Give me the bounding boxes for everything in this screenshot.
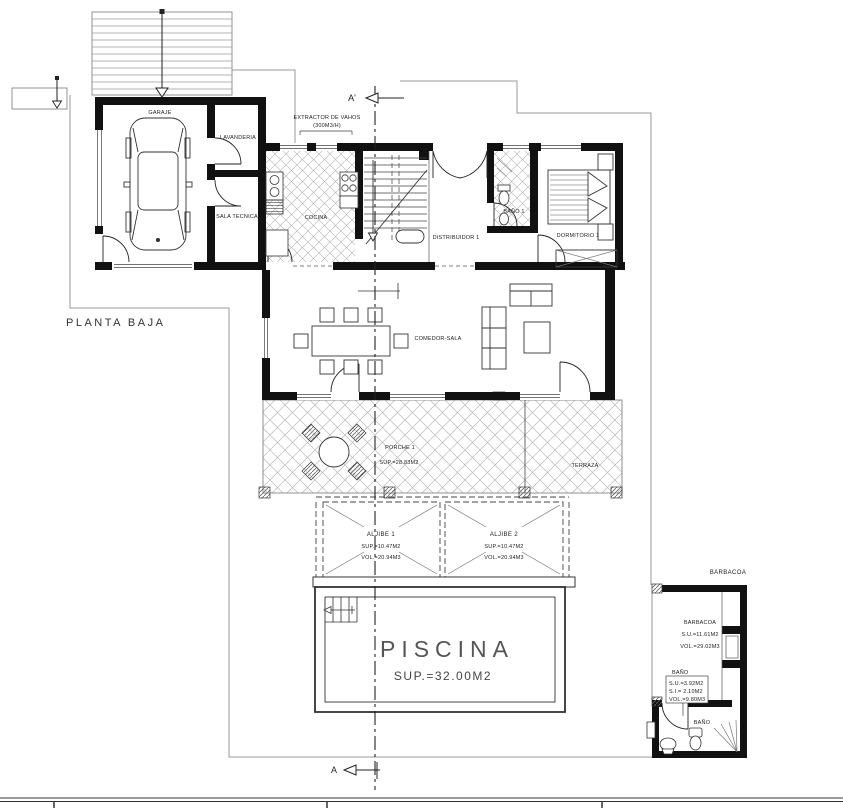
label-aljibe2-sup: SUP.=10.47M2 [484, 544, 523, 550]
label-lavanderia: LAVANDERIA [220, 135, 256, 141]
label-garaje: GARAJE [148, 110, 171, 116]
label-dormitorio1: DORMITORIO 1 [557, 233, 600, 239]
label-porche: PORCHE 1 [385, 445, 415, 451]
label-barbacoa-bano: BAÑO [672, 669, 689, 676]
floor-plan-page: A' A EXTRACTOR DE VAHOS (300M3/H) GARAJE… [0, 0, 843, 808]
plan-title: PLANTA BAJA [66, 317, 165, 329]
label-distribuidor: DISTRIBUIDOR 1 [433, 235, 480, 241]
floor-plan-drawing: A' A EXTRACTOR DE VAHOS (300M3/H) GARAJE… [0, 0, 843, 808]
label-barbacoa-title: BARBACOA [710, 570, 747, 576]
label-barbacoa-bano-si: S.I.= 2.10M2 [669, 689, 703, 695]
label-piscina-sup: SUP.=32.00M2 [394, 669, 492, 683]
label-piscina: PISCINA [380, 636, 514, 662]
label-cocina: COCINA [305, 215, 328, 221]
label-barbacoa-bano-vol: VOL.=9.80M3 [669, 697, 705, 703]
section-label-a: A [331, 765, 337, 775]
label-barbacoa-bano-su: S.U.=3.92M2 [669, 681, 703, 687]
extractor-text-2: (300M3/H) [313, 123, 341, 129]
label-terraza: TERRAZA [571, 463, 598, 469]
label-aljibe1: ALJIBE 1 [367, 532, 395, 538]
label-barbacoa-vol: VOL.=29.02M3 [680, 644, 720, 650]
label-comedor: COMEDOR-SALA [414, 336, 461, 342]
section-label-a-prime: A' [348, 93, 356, 103]
label-barbacoa-room: BARBACOA [684, 620, 716, 626]
label-barbacoa-su: S.U.=11.61M2 [681, 632, 718, 638]
label-sala-tecnica: SALA TECNICA [216, 214, 258, 220]
label-barbacoa-bano-room: BAÑO [694, 719, 711, 726]
porch-floor [259, 392, 622, 498]
label-aljibe1-vol: VOL.=20.94M3 [361, 555, 401, 561]
extractor-text-1: EXTRACTOR DE VAHOS [294, 115, 361, 121]
label-porche-sup: SUP.=28.83M2 [379, 460, 418, 466]
label-aljibe2-vol: VOL.=20.94M3 [484, 555, 524, 561]
label-bano1: BAÑO 1 [503, 208, 524, 215]
label-aljibe1-sup: SUP.=10.47M2 [361, 544, 400, 550]
label-aljibe2: ALJIBE 2 [490, 532, 518, 538]
